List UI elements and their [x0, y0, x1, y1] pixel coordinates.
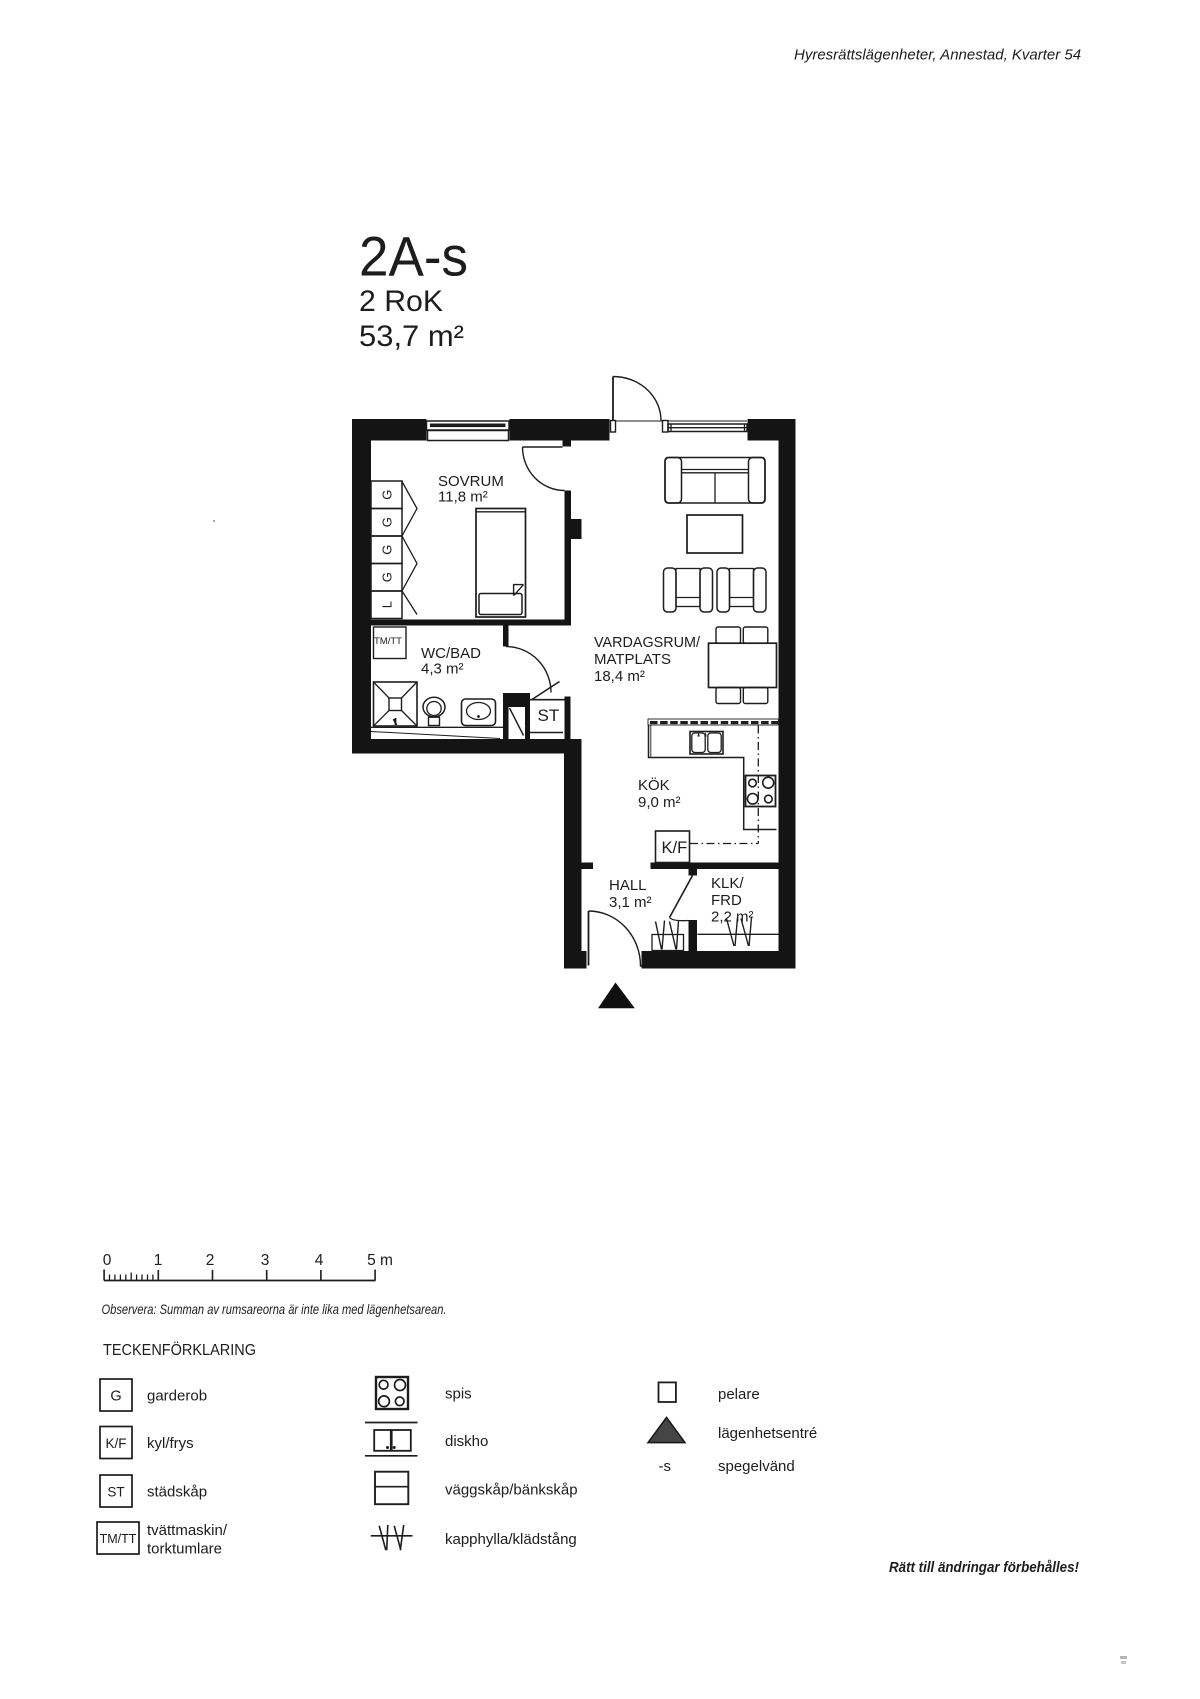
svg-text:FRD: FRD: [711, 892, 742, 909]
svg-text:WC/BAD: WC/BAD: [421, 645, 481, 662]
svg-text:TECKENFÖRKLARING: TECKENFÖRKLARING: [103, 1341, 256, 1359]
svg-text:väggskåp/bänkskåp: väggskåp/bänkskåp: [445, 1482, 578, 1499]
svg-text:VARDAGSRUM/: VARDAGSRUM/: [594, 634, 701, 651]
svg-text:torktumlare: torktumlare: [147, 1541, 222, 1558]
svg-text:städskåp: städskåp: [147, 1484, 207, 1501]
svg-text:MATPLATS: MATPLATS: [594, 651, 671, 668]
svg-text:G: G: [380, 545, 395, 555]
svg-text:53,7 m²: 53,7 m²: [359, 320, 464, 353]
svg-text:0: 0: [103, 1252, 112, 1269]
svg-text:1: 1: [154, 1252, 163, 1269]
svg-text:spis: spis: [445, 1386, 472, 1403]
svg-text:ST: ST: [107, 1485, 124, 1500]
svg-text:KÖK: KÖK: [638, 776, 670, 794]
svg-text:SOVRUM: SOVRUM: [438, 473, 504, 490]
svg-text:3: 3: [261, 1252, 270, 1269]
svg-text:kyl/frys: kyl/frys: [147, 1435, 194, 1452]
svg-text:G: G: [380, 490, 395, 500]
svg-text:2: 2: [206, 1252, 215, 1269]
svg-text:kapphylla/klädstång: kapphylla/klädstång: [445, 1531, 577, 1548]
svg-text:KLK/: KLK/: [711, 875, 744, 892]
svg-text:-s: -s: [659, 1458, 672, 1475]
svg-text:3,1 m²: 3,1 m²: [609, 894, 652, 911]
svg-text:garderob: garderob: [147, 1388, 207, 1405]
svg-text:2,2 m²: 2,2 m²: [711, 909, 754, 926]
svg-text:2A-s: 2A-s: [359, 225, 468, 288]
svg-text:5 m: 5 m: [367, 1252, 393, 1269]
svg-text:ST: ST: [538, 706, 560, 725]
svg-text:K/F: K/F: [662, 839, 688, 857]
svg-text:18,4 m²: 18,4 m²: [594, 668, 645, 685]
svg-text:G: G: [110, 1389, 121, 1405]
svg-text:HALL: HALL: [609, 877, 647, 894]
svg-text:Rätt till ändringar förbehålle: Rätt till ändringar förbehålles!: [889, 1559, 1079, 1576]
svg-text:L: L: [380, 601, 395, 608]
svg-text:diskho: diskho: [445, 1433, 488, 1450]
svg-text:K/F: K/F: [105, 1436, 126, 1451]
svg-text:9,0 m²: 9,0 m²: [638, 794, 681, 811]
svg-text:2 RoK: 2 RoK: [359, 285, 443, 318]
svg-text:4,3 m²: 4,3 m²: [421, 661, 464, 678]
svg-text:TM/TT: TM/TT: [374, 636, 402, 647]
svg-text:11,8 m²: 11,8 m²: [438, 489, 488, 506]
svg-text:Hyresrättslägenheter, Annestad: Hyresrättslägenheter, Annestad, Kvarter …: [794, 47, 1081, 64]
svg-text:G: G: [380, 517, 395, 527]
svg-text:Observera: Summan av rumsareor: Observera: Summan av rumsareorna är inte…: [102, 1301, 447, 1317]
svg-text:TM/TT: TM/TT: [100, 1532, 137, 1546]
svg-text:tvättmaskin/: tvättmaskin/: [147, 1522, 228, 1539]
svg-text:G: G: [380, 572, 395, 582]
svg-text:spegelvänd: spegelvänd: [718, 1458, 795, 1475]
svg-text:pelare: pelare: [718, 1386, 760, 1403]
svg-text:4: 4: [315, 1252, 324, 1269]
svg-text:lägenhetsentré: lägenhetsentré: [718, 1425, 817, 1442]
